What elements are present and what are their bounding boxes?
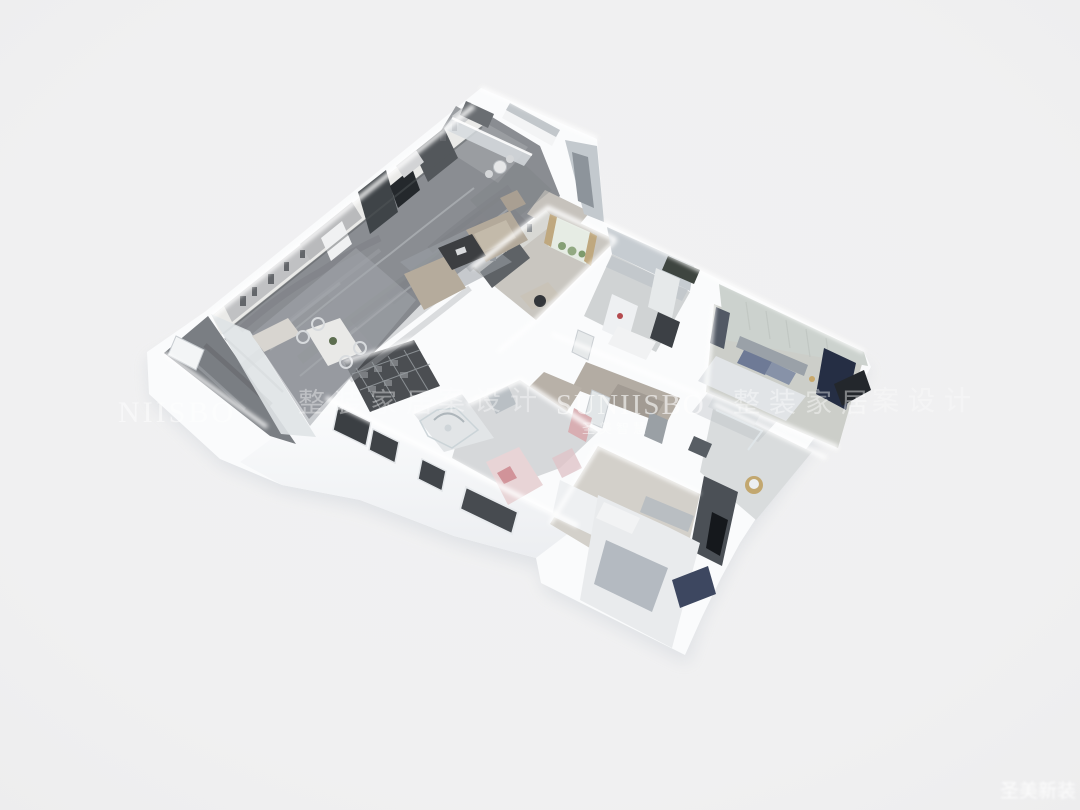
svg-text:圣美智慧: 圣美智慧 bbox=[582, 421, 650, 436]
svg-text:SUNIISBO: SUNIISBO bbox=[556, 389, 706, 421]
svg-text:圣美新装: 圣美新装 bbox=[1000, 780, 1076, 802]
svg-text:案设计: 案设计 bbox=[872, 386, 980, 416]
svg-text:整装家居: 整装家居 bbox=[733, 388, 877, 418]
svg-text:案设计: 案设计 bbox=[438, 386, 546, 416]
svg-text:整装家居: 整装家居 bbox=[298, 388, 442, 418]
svg-text:NIISBO: NIISBO bbox=[118, 396, 236, 429]
